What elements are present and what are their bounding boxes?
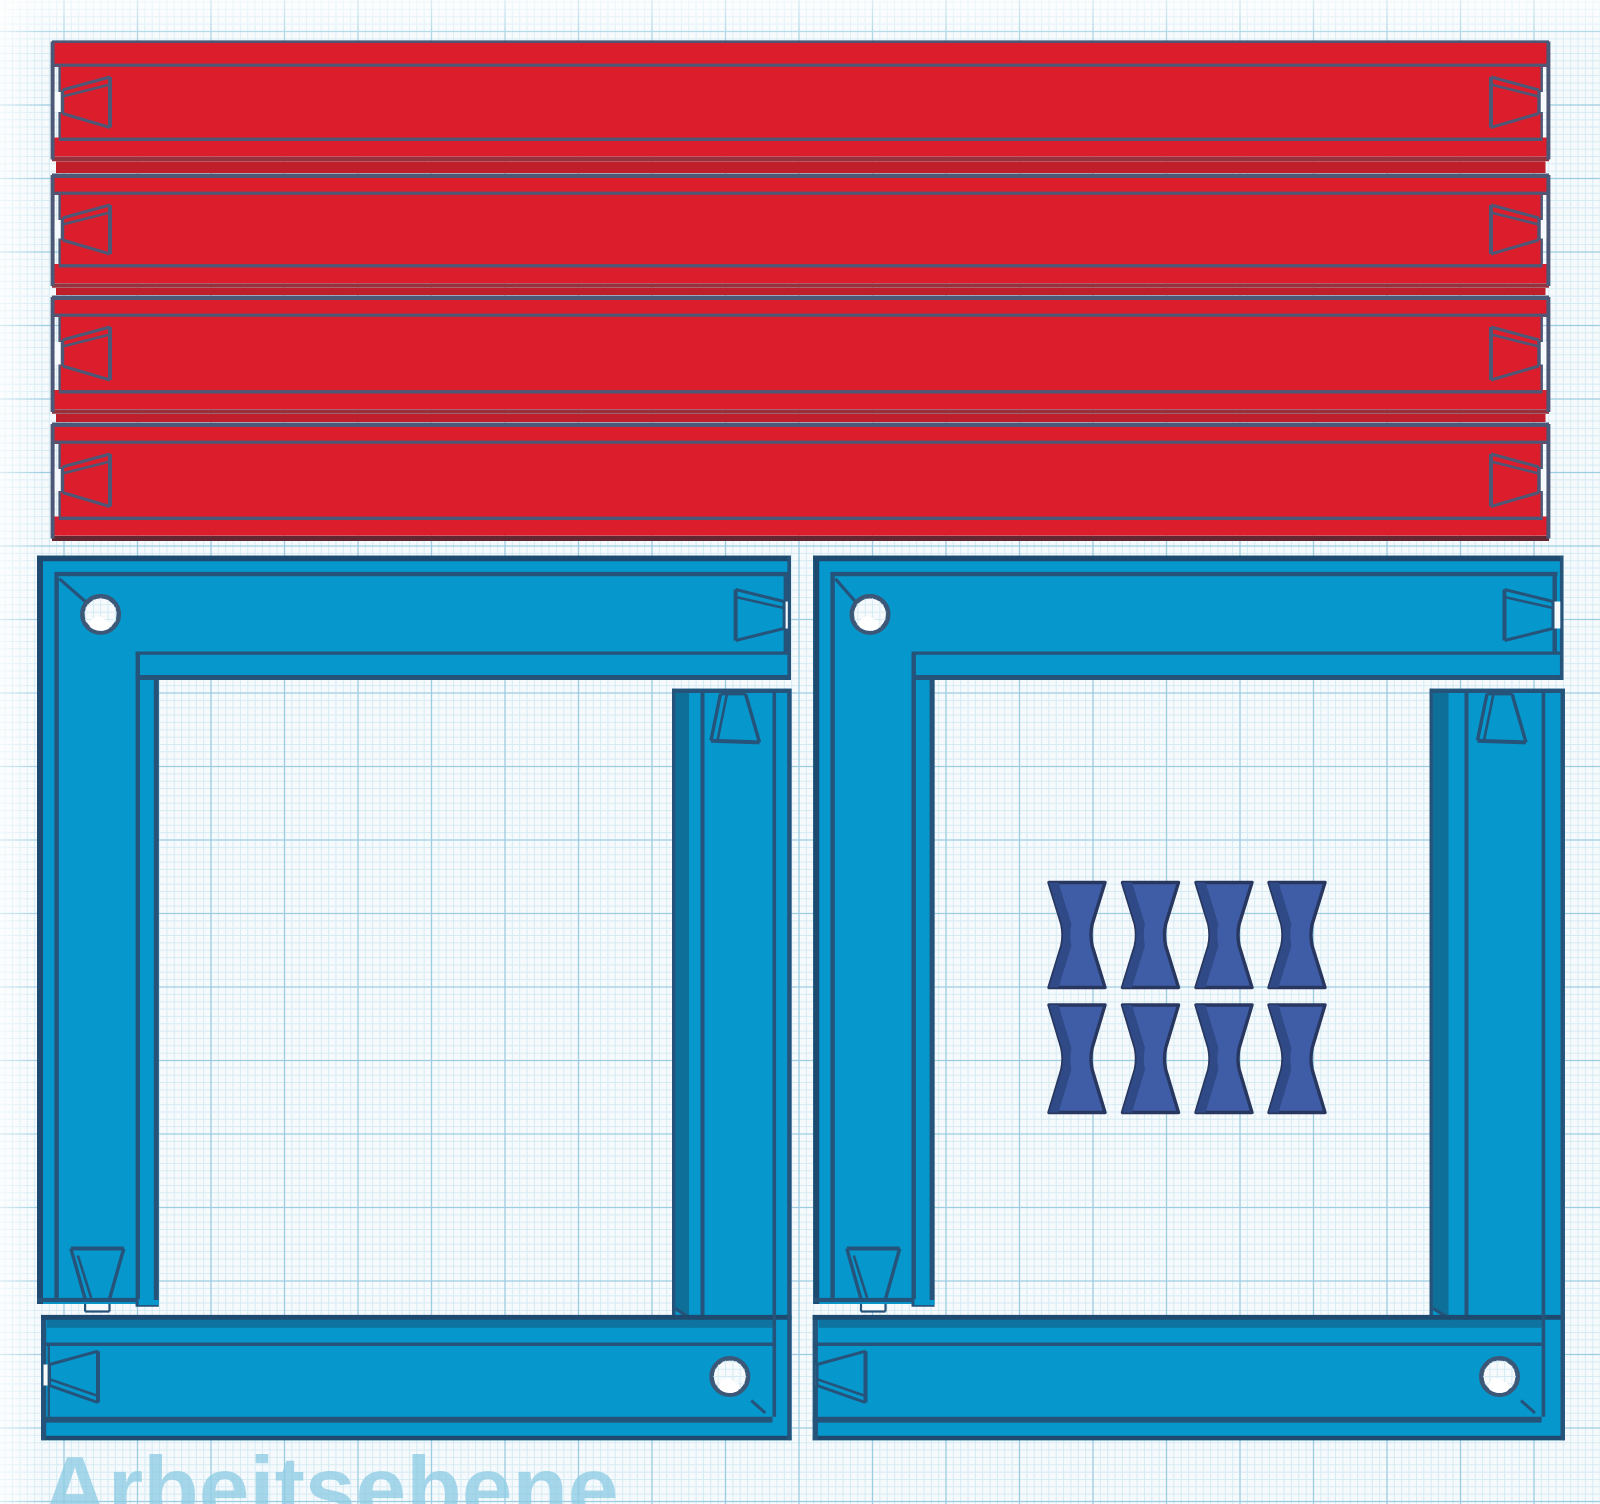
svg-text:Arbeitsebene: Arbeitsebene [42, 1439, 619, 1504]
